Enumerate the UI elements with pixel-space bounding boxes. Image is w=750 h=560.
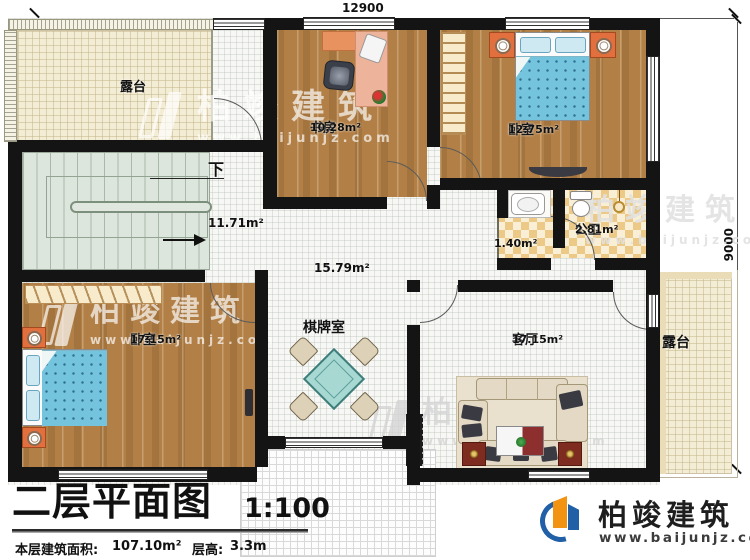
wall-segment [458,280,613,292]
wall-segment [407,325,420,485]
study-plant-icon [372,90,386,104]
wall-segment [497,258,551,270]
sofa-back [476,378,568,400]
shower-head-icon [613,201,625,213]
terrace-partition-line [211,30,213,142]
dim-tick [29,8,40,19]
brand-logo-icon [538,490,590,548]
wall-segment [553,188,565,248]
wall-segment [8,282,22,467]
room-name: 露台 [120,81,146,96]
study-desk [322,31,358,51]
floor-height-label: 层高: [192,539,223,558]
brand-logo: 柏竣建筑 www.baijunjz.com [538,488,738,550]
room-area: 17.15m² [130,334,181,347]
right-dimension-label: 9000 [722,228,736,261]
room-area: 10.28m² [310,122,361,135]
window [646,56,660,162]
floor-height-value: 3.3m [230,539,267,554]
window [58,469,208,480]
terrace-top-left-floor [17,30,213,141]
terrace-railing [4,30,17,142]
top-dimension-label: 12900 [342,1,384,15]
room-area: 1.40m² [494,238,537,251]
page-title: 二层平面图 [12,480,212,527]
coffee-table [496,426,544,456]
floor-area-label: 本层建筑面积: [15,539,98,558]
sofa-cushion [461,423,482,438]
wall-segment [427,185,440,209]
title-block: 二层平面图 1:100 本层建筑面积: 107.10m² 层高: 3.3m [12,480,342,558]
bedroom-bl-bed [22,349,107,426]
room-area: 17.15m² [512,334,563,347]
floor-area-value: 107.10m² [112,539,181,554]
terrace-right-wrap [658,270,738,478]
room-area: 15.79m² [314,262,370,276]
wall-segment [255,436,285,449]
sliding-door [285,437,383,448]
wall-segment [263,18,277,209]
nightstand [590,32,616,58]
window [303,17,395,30]
wall-segment [427,18,440,147]
nightstand [22,427,46,448]
window [505,17,590,30]
wall-segment [407,280,420,292]
stair-direction-arrow [163,239,195,241]
window [528,470,590,480]
stair-handrail [70,201,212,213]
title-underline [12,529,308,533]
end-table [558,442,582,466]
wall-segment [255,270,268,283]
terrace-right-floor [660,272,732,474]
wall-segment [8,270,205,282]
nightstand [22,327,46,348]
room-name: 棋牌室 [303,320,345,336]
terrace-railing [8,19,214,30]
room-name: 露台 [662,335,690,351]
wall-segment [595,258,647,270]
toilet-bowl [572,200,590,217]
room-area: 11.71m² [208,217,264,231]
wall-segment [263,197,387,209]
room-area: 2.81m² [575,224,618,237]
terrace-right-band-top [660,272,732,279]
toilet-icon [570,191,592,200]
bedroom-bl-tv [245,389,253,416]
bathroom-sink [511,193,545,215]
wall-segment [646,160,660,280]
wall-segment [646,18,660,58]
terrace-right-band-left [660,272,666,474]
study-chair [323,60,356,92]
end-table [462,442,486,466]
stair-arrow-head-icon [194,234,206,246]
brand-url: www.baijunjz.com [599,530,750,546]
wall-segment [497,188,508,218]
nightstand [489,32,515,58]
window [647,294,659,328]
bedroom-tr-wardrobe [442,32,466,135]
window [213,18,265,30]
wall-segment [440,178,660,190]
floor-plan-page: 12900 9000 柏竣建筑 www.baijunjz.com 柏竣建筑 [0,0,750,560]
bedroom-bl-wardrobe [25,285,162,304]
room-area: 12.75m² [508,124,559,137]
bedroom-tr-bed [515,32,590,121]
scale-label: 1:100 [244,493,330,524]
wall-segment [8,140,22,282]
room-name: 下 [208,161,224,179]
brand-name: 柏竣建筑 [598,492,734,534]
wall-segment [8,140,277,152]
